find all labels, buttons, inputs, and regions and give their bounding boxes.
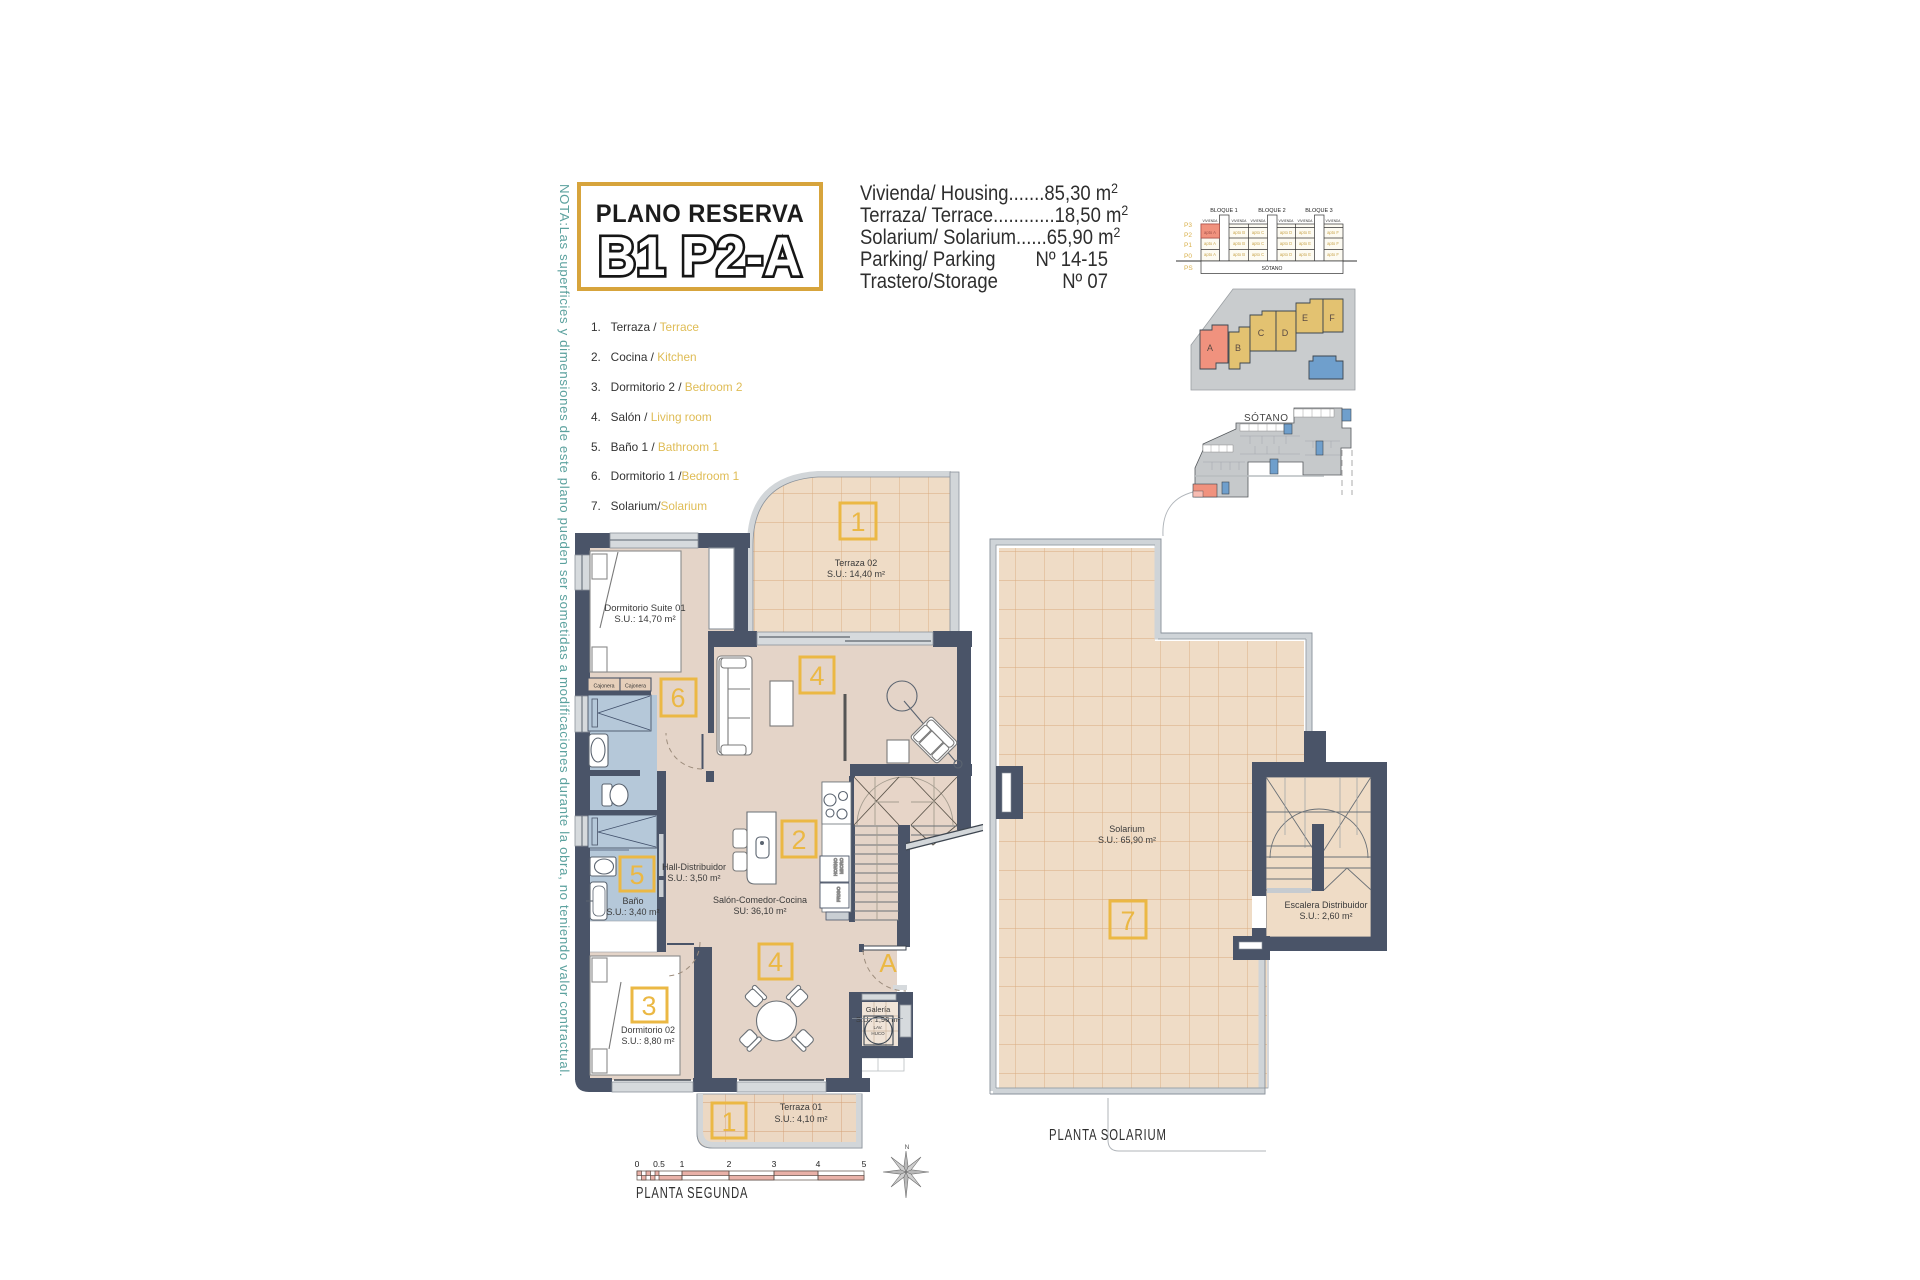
svg-text:HORNO: HORNO <box>833 858 838 876</box>
svg-text:S.U.: 4,10 m²: S.U.: 4,10 m² <box>774 1114 827 1124</box>
svg-text:F: F <box>1329 313 1335 323</box>
svg-text:A: A <box>879 948 897 978</box>
svg-text:apto E: apto E <box>1299 241 1311 246</box>
svg-text:VIVIENDA: VIVIENDA <box>1279 219 1295 223</box>
svg-text:Parking/ Parking: Parking/ Parking <box>860 248 995 271</box>
svg-text:Nº 07: Nº 07 <box>1062 270 1108 293</box>
svg-text:apto C: apto C <box>1252 241 1264 246</box>
svg-text:apto B: apto B <box>1233 252 1245 257</box>
svg-text:Nº 14-15: Nº 14-15 <box>1036 248 1108 271</box>
svg-text:S.U.: 3,40 m²: S.U.: 3,40 m² <box>606 907 659 917</box>
svg-text:S.U.: 1,90 m²: S.U.: 1,90 m² <box>856 1015 901 1024</box>
svg-text:3: 3 <box>772 1159 777 1169</box>
svg-text:5: 5 <box>629 860 644 890</box>
svg-text:Hall-Distribuidor: Hall-Distribuidor <box>662 862 726 872</box>
svg-text:2: 2 <box>727 1159 732 1169</box>
svg-text:Trastero/Storage: Trastero/Storage <box>860 270 998 293</box>
svg-text:Cajonera: Cajonera <box>625 684 646 690</box>
svg-text:BLOQUE 3: BLOQUE 3 <box>1305 208 1333 214</box>
svg-text:2: 2 <box>791 825 806 855</box>
svg-text:SÓTANO: SÓTANO <box>1244 411 1288 424</box>
svg-text:apto D: apto D <box>1280 241 1292 246</box>
svg-text:4: 4 <box>768 947 783 977</box>
svg-text:7: 7 <box>1120 906 1135 936</box>
svg-text:1: 1 <box>680 1159 685 1169</box>
svg-text:apto E: apto E <box>1299 230 1311 235</box>
svg-text:Solarium/ Solarium......65,90: Solarium/ Solarium......65,90 m2 <box>860 224 1120 249</box>
svg-text:P0: P0 <box>1184 253 1192 260</box>
svg-text:Galería: Galería <box>866 1005 891 1014</box>
svg-text:apto F: apto F <box>1327 241 1339 246</box>
svg-text:apto B: apto B <box>1233 241 1245 246</box>
svg-text:Vivienda/ Housing.......85,30: Vivienda/ Housing.......85,30 m2 <box>860 180 1118 205</box>
svg-text:apto B: apto B <box>1233 230 1245 235</box>
svg-text:apto A: apto A <box>1204 230 1216 235</box>
svg-text:PS: PS <box>1184 265 1193 272</box>
svg-text:4. Salón / Living room: 4. Salón / Living room <box>591 410 712 424</box>
svg-text:VIVIENDA: VIVIENDA <box>1251 219 1267 223</box>
svg-text:Terraza 02: Terraza 02 <box>835 558 878 568</box>
svg-text:P3: P3 <box>1184 222 1192 229</box>
svg-text:6: 6 <box>670 683 685 713</box>
svg-text:S.U.: 65,90 m²: S.U.: 65,90 m² <box>1098 835 1156 845</box>
svg-text:4: 4 <box>809 661 824 691</box>
svg-text:3: 3 <box>641 991 656 1021</box>
svg-text:apto F: apto F <box>1327 252 1339 257</box>
svg-text:FRIGO: FRIGO <box>836 886 841 902</box>
svg-text:PLANTA SOLARIUM: PLANTA SOLARIUM <box>1049 1126 1167 1143</box>
svg-text:apto A: apto A <box>1204 252 1216 257</box>
svg-text:Dormitorio Suite 01: Dormitorio Suite 01 <box>604 603 685 614</box>
svg-text:VIVIENDA: VIVIENDA <box>1203 219 1219 223</box>
svg-text:SÓTANO: SÓTANO <box>1262 265 1283 272</box>
svg-text:S.U.: 2,60 m²: S.U.: 2,60 m² <box>1299 911 1352 921</box>
svg-text:A: A <box>1207 343 1213 353</box>
svg-text:1. Terraza / Terrace: 1. Terraza / Terrace <box>591 320 699 334</box>
svg-text:D: D <box>1282 328 1289 338</box>
svg-text:4: 4 <box>816 1159 821 1169</box>
svg-text:Terraza/ Terrace............18: Terraza/ Terrace............18,50 m2 <box>860 202 1128 227</box>
svg-text:MICRO: MICRO <box>839 857 844 874</box>
svg-text:apto C: apto C <box>1252 230 1264 235</box>
svg-text:1: 1 <box>850 507 865 537</box>
svg-text:LAV.: LAV. <box>873 1025 882 1030</box>
svg-text:PLANO RESERVA: PLANO RESERVA <box>596 200 804 228</box>
svg-text:E: E <box>1302 313 1308 323</box>
svg-text:VIVIENDA: VIVIENDA <box>1298 219 1314 223</box>
svg-text:N: N <box>905 1144 910 1151</box>
svg-text:Solarium: Solarium <box>1109 824 1145 834</box>
svg-text:0.5: 0.5 <box>653 1159 665 1169</box>
svg-text:BLOQUE 1: BLOQUE 1 <box>1210 208 1238 214</box>
svg-text:VIVIENDA: VIVIENDA <box>1326 219 1342 223</box>
svg-text:Terraza 01: Terraza 01 <box>780 1102 823 1112</box>
svg-text:6. Dormitorio 1 /Bedroom 1: 6. Dormitorio 1 /Bedroom 1 <box>591 469 739 483</box>
svg-text:S.U.: 14,70 m²: S.U.: 14,70 m² <box>614 614 675 625</box>
svg-text:P2: P2 <box>1184 232 1192 239</box>
svg-text:Baño: Baño <box>622 896 643 906</box>
svg-text:NOTA:Las superficies y dimensi: NOTA:Las superficies y dimensiones de es… <box>557 184 572 1077</box>
svg-text:B1 P2-A: B1 P2-A <box>598 226 802 288</box>
svg-text:7. Solarium/Solarium: 7. Solarium/Solarium <box>591 499 707 513</box>
svg-text:PLANTA SEGUNDA: PLANTA SEGUNDA <box>636 1184 748 1201</box>
svg-text:1: 1 <box>721 1107 736 1137</box>
svg-text:S.U.: 3,50 m²: S.U.: 3,50 m² <box>667 873 720 883</box>
svg-text:apto A: apto A <box>1204 241 1216 246</box>
svg-text:Cajonera: Cajonera <box>593 684 614 690</box>
svg-text:P1: P1 <box>1184 242 1192 249</box>
svg-text:C: C <box>1258 328 1265 338</box>
svg-text:apto D: apto D <box>1280 252 1292 257</box>
svg-text:BLOQUE 2: BLOQUE 2 <box>1258 208 1286 214</box>
svg-text:0: 0 <box>635 1159 640 1169</box>
svg-text:Salón-Comedor-Cocina: Salón-Comedor-Cocina <box>713 895 807 905</box>
svg-text:S.U.: 14,40 m²: S.U.: 14,40 m² <box>827 569 885 579</box>
svg-text:Dormitorio 02: Dormitorio 02 <box>621 1025 675 1035</box>
svg-text:Escalera Distribuidor: Escalera Distribuidor <box>1284 900 1367 910</box>
svg-text:apto D: apto D <box>1280 230 1292 235</box>
svg-text:3. Dormitorio 2 / Bedroom 2: 3. Dormitorio 2 / Bedroom 2 <box>591 380 742 394</box>
svg-text:5. Baño 1 / Bathroom 1: 5. Baño 1 / Bathroom 1 <box>591 440 719 454</box>
svg-text:SU: 36,10 m²: SU: 36,10 m² <box>733 906 786 916</box>
svg-text:apto C: apto C <box>1252 252 1264 257</box>
svg-text:S.U.: 8,80 m²: S.U.: 8,80 m² <box>621 1036 674 1046</box>
svg-text:2. Cocina / Kitchen: 2. Cocina / Kitchen <box>591 350 697 364</box>
svg-text:HUCO: HUCO <box>871 1031 885 1036</box>
svg-text:B: B <box>1235 343 1241 353</box>
svg-text:VIVIENDA: VIVIENDA <box>1232 219 1248 223</box>
svg-text:apto F: apto F <box>1327 230 1339 235</box>
svg-text:apto E: apto E <box>1299 252 1311 257</box>
svg-text:5: 5 <box>862 1159 867 1169</box>
